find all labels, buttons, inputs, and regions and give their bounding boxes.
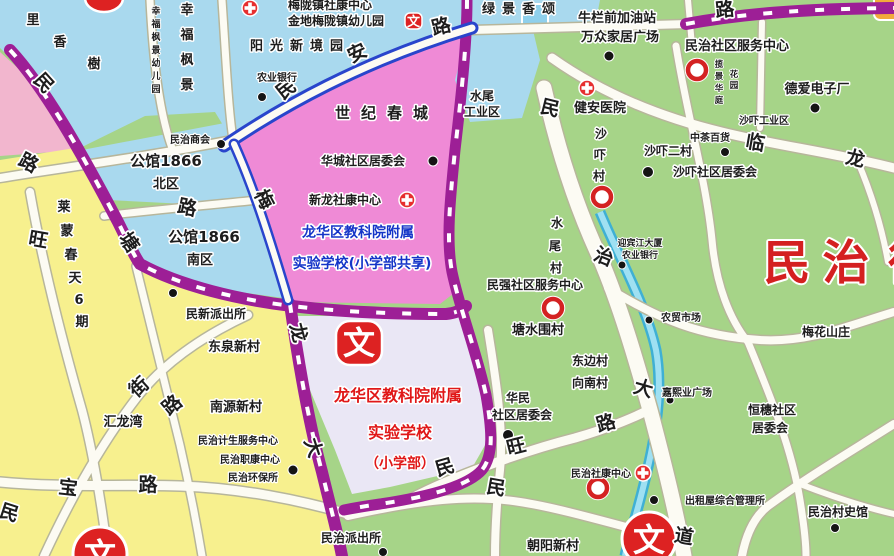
label-gongguan-nan-1: 公馆1866 (168, 228, 240, 246)
road-label-lin: 临 (744, 130, 767, 156)
road-label-min-s: 民 (485, 476, 508, 501)
wen-glyph: 文 (633, 521, 665, 556)
label-school-primary-1: 龙华区教科院附属 (333, 386, 462, 405)
label-jindi-kindergarten: 金地梅陇镇幼儿园 (287, 13, 384, 28)
label-meilong-health: 梅陇镇社康中心 (288, 0, 372, 12)
label-zhongcha: 中茶百货 (690, 131, 730, 144)
hospital-cross-icon-meilong (242, 0, 258, 16)
label-chaoyang: 朝阳新村 (527, 538, 579, 554)
label-huamin-1: 华民 (506, 390, 530, 405)
label-shuiwei-industrial-1: 水尾 (470, 88, 494, 103)
road-label-bao: 宝 (57, 475, 78, 500)
label-shaxia-ercun: 沙吓二村 (644, 143, 692, 158)
hospital-cross-icon-xinlong (399, 192, 415, 208)
label-shuiwei-industrial-2: 工业区 (464, 104, 500, 119)
label-school-primary-3: （小学部） (365, 455, 435, 472)
road-label-wang: 旺 (27, 228, 50, 253)
label-lvjing: 绿景香颂 (482, 1, 562, 17)
label-shaxia-industrial: 沙吓工业区 (739, 114, 789, 127)
label-minqiang: 民强社区服务中心 (487, 277, 583, 292)
label-yangguang: 阳光新境园 (250, 38, 350, 54)
label-gongguan-nan-2: 南区 (187, 252, 213, 268)
label-huacheng: 华城社区居委会 (321, 153, 406, 168)
label-hengsui-2: 居委会 (752, 420, 789, 435)
label-minzhi-chamber: 民治商会 (170, 133, 210, 146)
ring-icon-shaxia (591, 186, 614, 209)
wen-icon-school: 文 (336, 321, 382, 365)
label-school-primary-2: 实验学校 (368, 423, 433, 442)
road-label-lu-bao: 路 (138, 473, 158, 496)
label-minxin-police: 民新派出所 (186, 306, 246, 321)
map-canvas[interactable]: 文 文 文 文 (0, 0, 894, 556)
label-yingbin-2: 农业银行 (621, 249, 658, 261)
label-jisheng: 民治计生服务中心 (198, 434, 278, 447)
label-nongye-bank: 农业银行 (256, 71, 297, 84)
label-wanzhong: 万众家居广场 (580, 29, 659, 45)
label-xinlong-health: 新龙社康中心 (309, 192, 381, 207)
label-dongquan: 东泉新村 (208, 339, 260, 355)
label-school-shared-1: 龙华区教科院附属 (301, 224, 414, 241)
ring-icon-tangshuiwei (542, 297, 565, 320)
hospital-cross-icon-shekang (635, 465, 651, 481)
label-school-shared-2: 实验学校(小学部共享) (293, 255, 432, 272)
road-label-lu-tr: 路 (714, 0, 736, 22)
label-hengsui-1: 恒穗社区 (748, 402, 796, 417)
label-minzhi-police: 民治派出所 (321, 530, 381, 545)
label-huanbao: 民治环保所 (228, 471, 278, 484)
label-gongguan-bei-2: 北区 (153, 177, 179, 192)
label-deai: 德爱电子厂 (784, 81, 849, 97)
label-minzhi-shekang: 民治社康中心 (571, 467, 631, 480)
label-jianan-hospital: 健安医院 (574, 100, 626, 116)
label-gongguan-bei-1: 公馆1866 (130, 152, 202, 170)
label-cunshiguan: 民治村史馆 (808, 504, 868, 519)
label-chuzuwu: 出租屋综合管理所 (685, 494, 765, 507)
wen-glyph: 文 (84, 536, 116, 556)
label-nongmao: 农贸市场 (660, 311, 701, 324)
wen-glyph: 文 (407, 14, 421, 30)
wen-glyph: 文 (343, 324, 375, 362)
label-tangshuiwei: 塘水围村 (512, 322, 564, 338)
label-zhikang: 民治职康中心 (220, 453, 280, 466)
wen-icon-bottom-right: 文 (622, 512, 676, 556)
label-nanyuan: 南源新村 (210, 399, 262, 415)
label-shaxia-village: 沙吓村 (593, 127, 607, 183)
label-dongbian-2: 向南村 (572, 375, 608, 390)
label-huilongwan: 汇龙湾 (103, 414, 142, 430)
label-shiji-chuncheng: 世纪春城 (335, 104, 439, 122)
label-jiaxiye: 嘉熙业广场 (661, 386, 712, 399)
hospital-cross-icon-jianan (579, 80, 595, 96)
wen-icon-jindi: 文 (405, 13, 422, 30)
label-huamin-2: 社区居委会 (491, 407, 553, 422)
label-yingbin-1: 迎宾江大厦 (617, 237, 663, 249)
label-dongbian-1: 东边村 (572, 353, 608, 368)
label-minzhi-service-center: 民治社区服务中心 (685, 38, 789, 54)
label-niulan-gas: 牛栏前加油站 (578, 10, 656, 26)
ring-icon-minzhi-service (686, 59, 709, 82)
label-shaxia-juweihui: 沙吓社区居委会 (673, 164, 758, 179)
label-meihua: 梅花山庄 (802, 324, 850, 339)
